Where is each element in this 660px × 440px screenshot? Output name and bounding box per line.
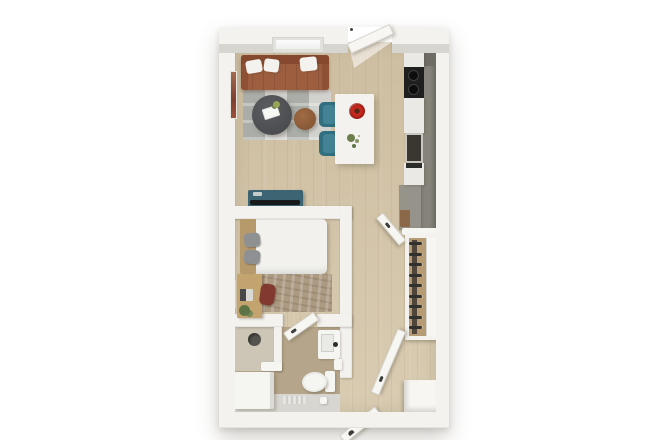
side-table — [294, 108, 316, 130]
bed — [256, 219, 327, 274]
chair-seat — [323, 105, 335, 124]
sink-basin — [321, 334, 334, 352]
refrigerator — [404, 163, 424, 185]
outer-wall-top-right — [392, 28, 449, 53]
shower-head — [248, 333, 261, 346]
closet-hanger — [409, 284, 422, 287]
coffee-table-plant — [273, 101, 280, 108]
cooktop — [404, 67, 424, 98]
closet-hanger — [409, 295, 422, 298]
toilet-paper — [320, 397, 327, 404]
wall-art — [231, 72, 236, 118]
bed-pillow-2 — [243, 249, 260, 264]
kitchen-wood-cabinet — [400, 210, 410, 227]
bathroom-door-handle — [347, 429, 354, 436]
flower-bowl — [349, 103, 365, 119]
bathroom-wall-cabinet — [334, 359, 342, 370]
closet-door-upper-handle — [385, 222, 391, 229]
kitchen-sink — [405, 133, 423, 163]
bedroom-top-wall — [233, 206, 352, 219]
cooktop-burner — [408, 70, 419, 81]
refrigerator-top — [406, 163, 422, 168]
shower-curb — [261, 362, 282, 371]
bath-mat — [283, 396, 307, 404]
kitchen-island — [335, 94, 374, 164]
closet-hanger — [409, 242, 422, 245]
outer-wall-bottom — [219, 412, 449, 428]
sink-faucet — [333, 342, 338, 347]
desk-chair — [259, 283, 277, 306]
bedroom-bottom-wall-right — [317, 314, 352, 327]
closet-hanger — [409, 326, 422, 329]
remote — [253, 192, 262, 196]
laptop-screen — [240, 289, 246, 301]
bathroom-vanity — [234, 372, 274, 409]
bed-pillow-1 — [243, 232, 260, 247]
sofa — [241, 55, 329, 90]
window-glass — [276, 40, 320, 49]
closet-hanger-rail — [409, 238, 426, 336]
kitchen-cabinet-mid — [404, 98, 424, 133]
sofa-pillow-3 — [299, 56, 317, 72]
island-plant — [347, 134, 355, 142]
apartment-plan — [219, 28, 449, 428]
tv — [250, 200, 300, 205]
wall-sink — [318, 330, 340, 359]
floorplan-render — [0, 0, 660, 440]
closet-door-lower-handle — [379, 376, 384, 383]
bedroom-door-handle — [290, 328, 297, 334]
laptop — [240, 289, 253, 301]
chair-seat — [323, 134, 335, 153]
coffee-table — [252, 95, 292, 135]
closet-hanger — [409, 263, 422, 266]
bedroom-right-wall — [340, 206, 352, 378]
closet-hanger — [409, 274, 422, 277]
window-frame — [272, 37, 324, 53]
cooktop-burner — [408, 84, 419, 95]
outer-wall-right — [436, 28, 449, 428]
entry-storage-block — [404, 380, 436, 412]
sofa-arm-right — [322, 55, 329, 90]
desk — [237, 274, 262, 318]
sofa-pillow-2 — [263, 58, 279, 73]
sofa-pillow-1 — [245, 59, 263, 75]
entry-door-hinge — [350, 28, 353, 31]
closet-hanger — [409, 305, 422, 308]
closet-hanger — [409, 316, 422, 319]
closet-hanger — [409, 253, 422, 256]
tv-console — [248, 190, 303, 207]
desk-plant — [239, 305, 250, 316]
